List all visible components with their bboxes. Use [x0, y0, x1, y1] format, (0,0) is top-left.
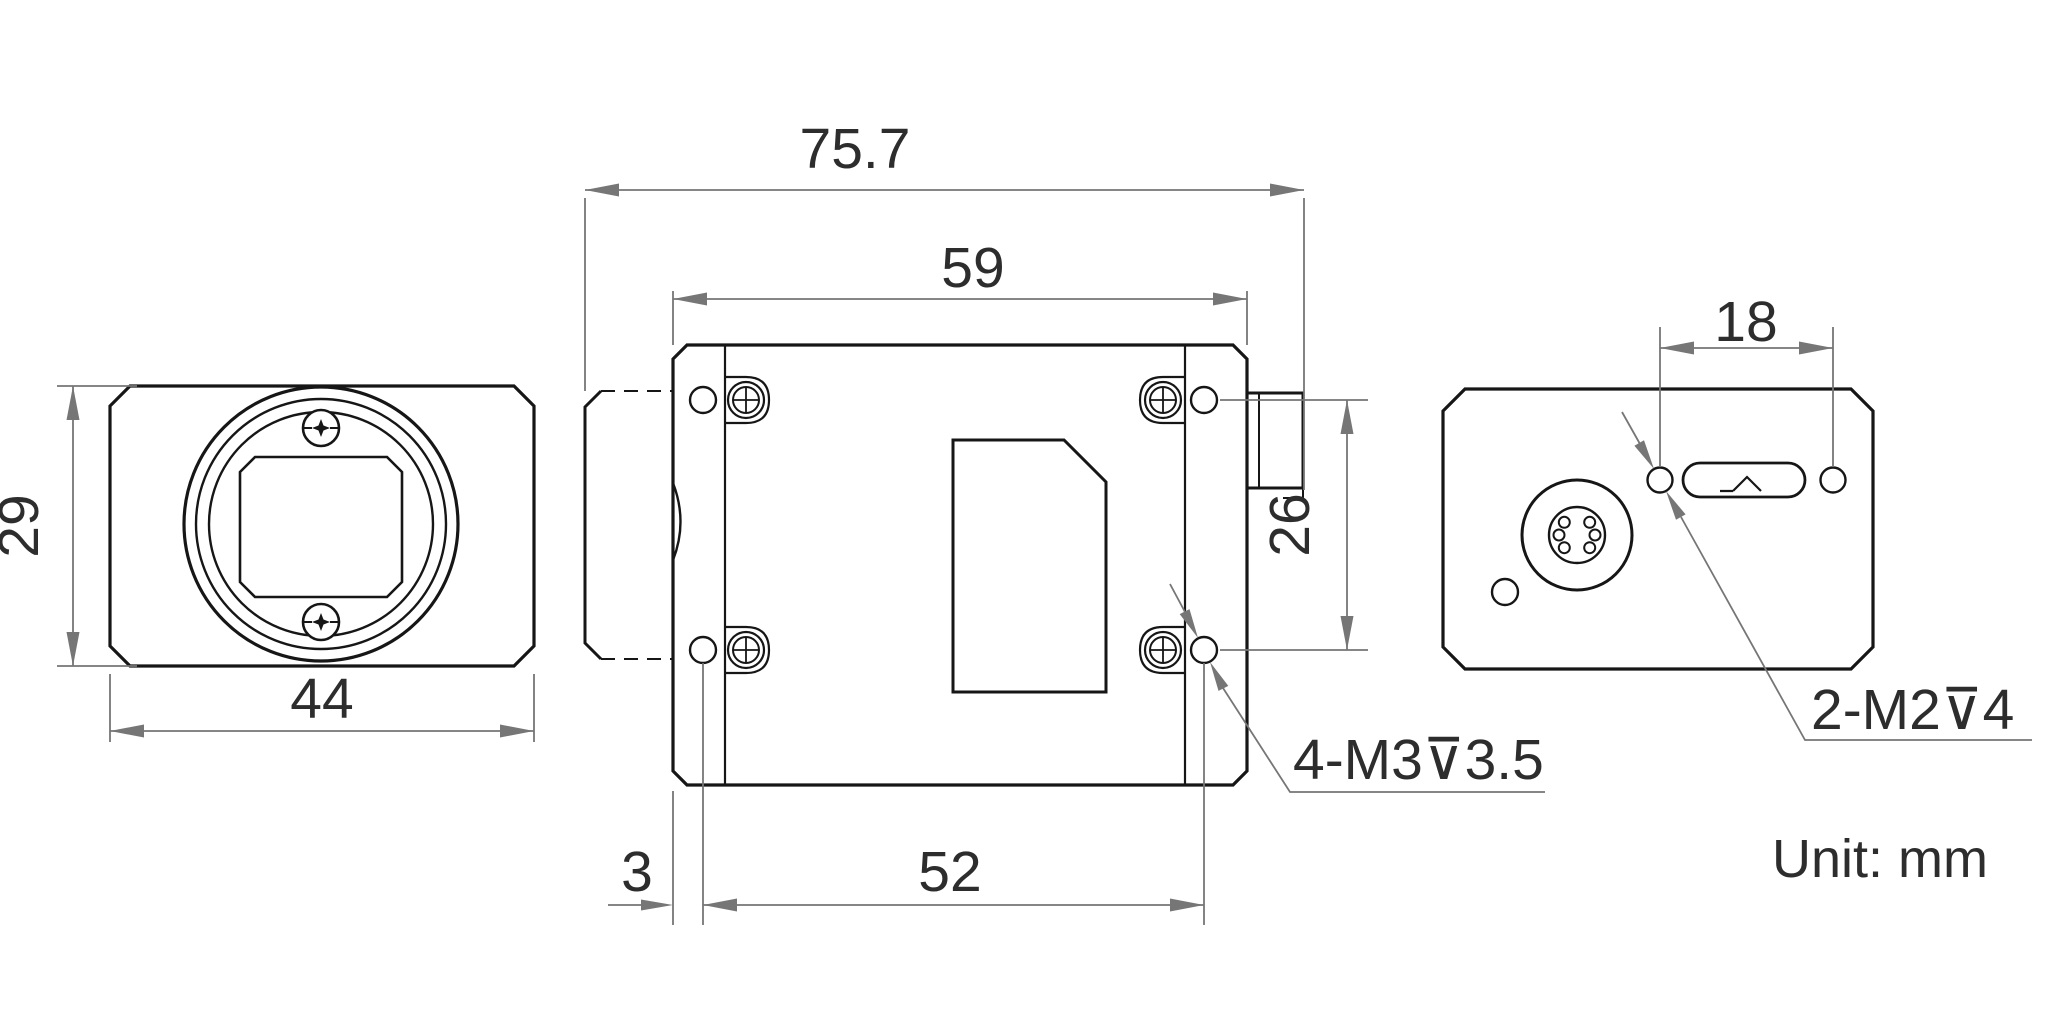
front-view	[110, 386, 534, 666]
dimension-drawing: 29 44	[0, 0, 2048, 1024]
m3-hole-bottom-right	[1191, 637, 1217, 663]
m3-hole-top-left	[690, 387, 716, 413]
dimension-overall-length: 75.7	[585, 117, 1304, 490]
label-text-4-m3: 4-M3⊽3.5	[1293, 728, 1544, 792]
phillips-screw-top-right	[1145, 382, 1181, 418]
central-opening	[953, 440, 1106, 692]
back-view	[1443, 389, 1873, 669]
phillips-screw-bottom-left	[728, 632, 764, 668]
back-panel-outline	[1443, 389, 1873, 669]
sensor-window	[240, 457, 402, 597]
label-text-2-m2: 2-M2⊽4	[1811, 678, 2014, 742]
dimension-side-hole-spacing: 26	[1220, 400, 1368, 650]
lens-block-front-face	[585, 391, 601, 659]
dim-text-75-7: 75.7	[800, 117, 911, 181]
dimension-bottom-holes: 3 52	[608, 663, 1204, 925]
phillips-screw-top-left	[728, 382, 764, 418]
dim-text-18: 18	[1714, 290, 1777, 354]
m3-hole-bottom-left	[690, 637, 716, 663]
connector-protrusion-detail	[1259, 393, 1303, 498]
unit-label: Unit: mm	[1772, 829, 1988, 889]
power-connector	[1522, 480, 1632, 590]
dimension-front-height: 29	[0, 386, 137, 666]
leader-side-mount-holes: 4-M3⊽3.5	[1170, 584, 1545, 792]
connector-protrusion	[1247, 393, 1303, 488]
m2-hole-right	[1821, 468, 1846, 493]
dimension-back-hole-spacing: 18	[1660, 290, 1833, 467]
leader-back-mount-holes: 2-M2⊽4	[1622, 412, 2032, 742]
dim-text-3: 3	[621, 840, 653, 904]
m2-hole-left	[1648, 468, 1673, 493]
top-view	[585, 345, 1303, 785]
dim-text-26: 26	[1258, 493, 1322, 556]
drawing-canvas: 29 44	[0, 0, 2048, 1024]
dimension-front-width: 44	[110, 667, 534, 742]
dimension-body-length: 59	[673, 236, 1247, 345]
phillips-screw-bottom-right	[1145, 632, 1181, 668]
dim-text-52: 52	[918, 840, 981, 904]
card-slot-arrow-mark	[1720, 477, 1761, 491]
status-led-hole	[1492, 579, 1518, 605]
dim-text-44: 44	[290, 667, 353, 731]
dim-text-29: 29	[0, 494, 51, 557]
side-plate-edges	[725, 345, 1185, 785]
lens-block-hidden-edges	[601, 391, 673, 659]
m3-hole-top-right	[1191, 387, 1217, 413]
dim-text-59: 59	[941, 236, 1004, 300]
